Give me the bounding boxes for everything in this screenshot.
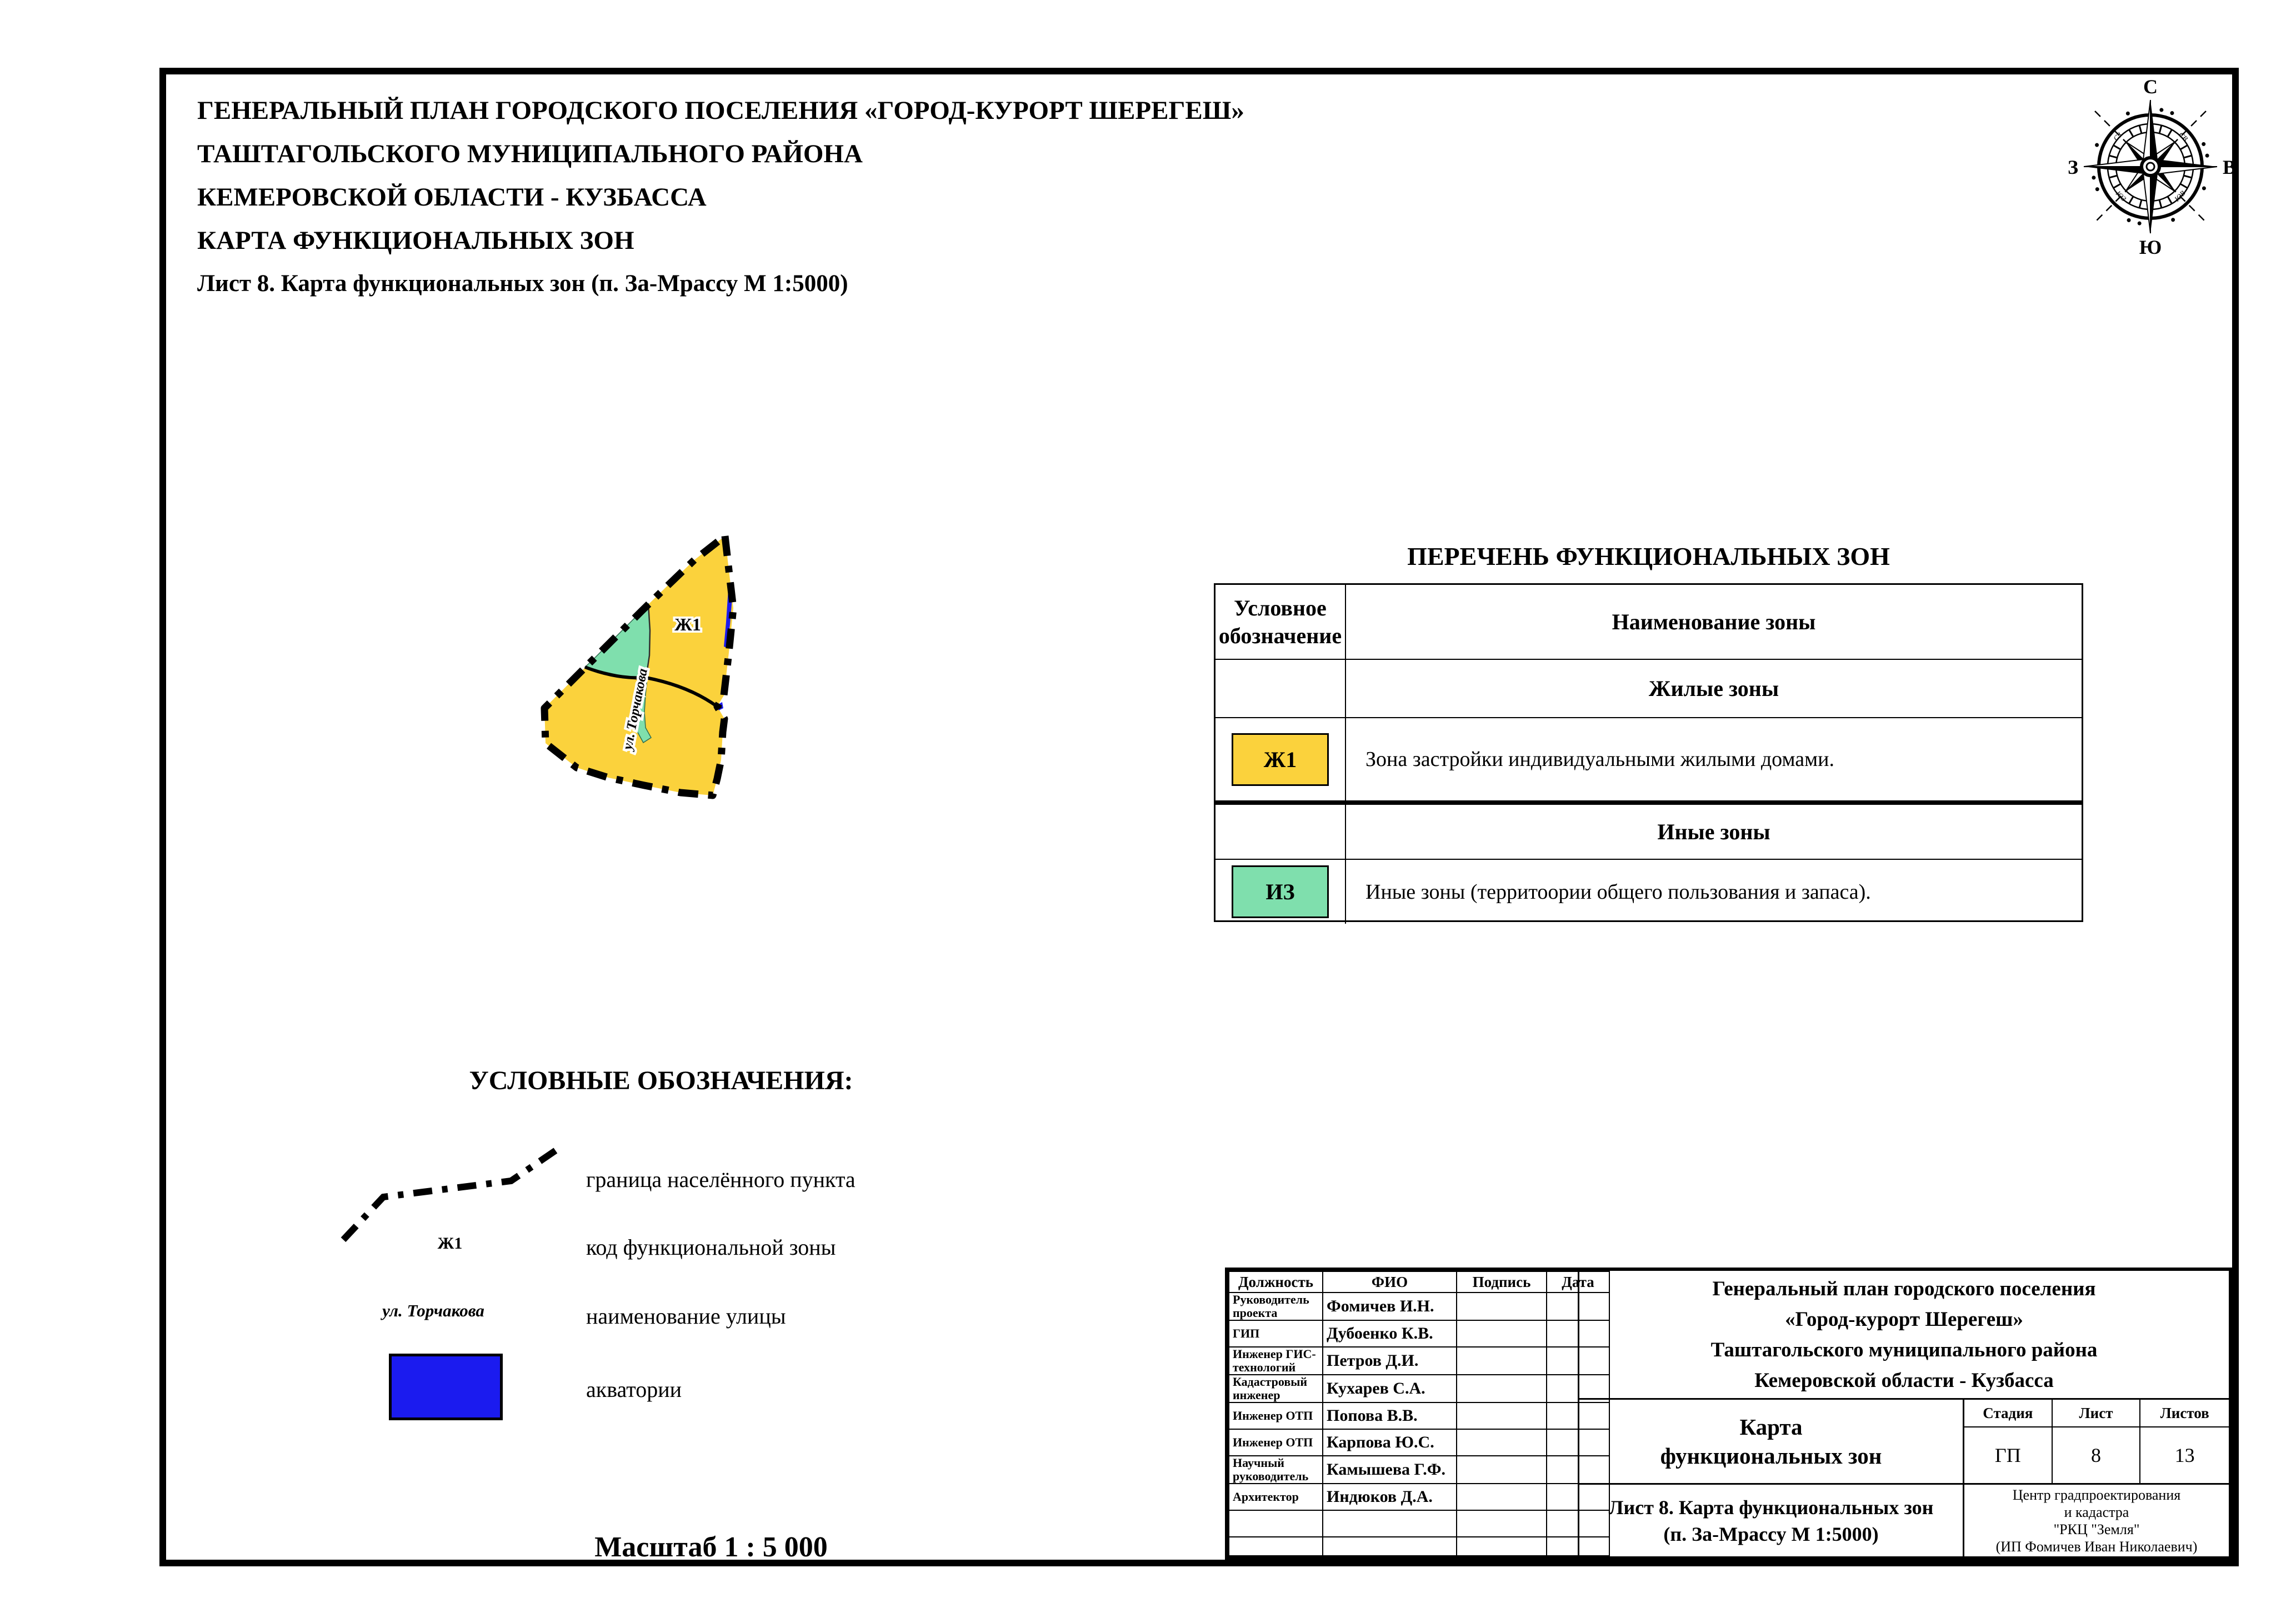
document-title: ГЕНЕРАЛЬНЫЙ ПЛАН ГОРОДСКОГО ПОСЕЛЕНИЯ «Г… [197, 89, 1530, 305]
staff-row: Инженер ОТППопова В.В. [1229, 1402, 1609, 1429]
zones-empty-cell [1215, 660, 1346, 718]
zones-table: Условное обозначение Наименование зоны Ж… [1214, 583, 2083, 922]
org-line: "РКЦ "Земля" [2054, 1521, 2140, 1538]
staff-signature-cell [1457, 1347, 1547, 1375]
sheet-header: Лист [2053, 1400, 2141, 1427]
project-title-line: Кемеровской области - Кузбасса [1754, 1365, 2054, 1396]
map-canvas: Ж1 ул. Торчакова [511, 511, 800, 844]
title-line-5: Лист 8. Карта функциональных зон (п. За-… [197, 262, 1530, 305]
title-line-2: ТАШТАГОЛЬСКОГО МУНИЦИПАЛЬНОГО РАЙОНА [197, 132, 1530, 176]
stage-value: ГП [1964, 1427, 2053, 1483]
zones-empty-cell-2 [1215, 802, 1346, 860]
legend-zone-code-label: код функциональной зоны [586, 1234, 836, 1260]
legend-water-swatch [389, 1354, 503, 1420]
sheet-caption-line: (п. За-Мрассу М 1:5000) [1663, 1521, 1878, 1547]
zone-row-zh1-swatch-cell: Ж1 [1215, 718, 1346, 802]
staff-name: Камышева Г.Ф. [1323, 1456, 1457, 1484]
title-line-3: КЕМЕРОВСКОЙ ОБЛАСТИ - КУЗБАССА [197, 176, 1530, 219]
staff-role [1229, 1537, 1323, 1556]
organization-info: Центр градпроектирования и кадастра "РКЦ… [1964, 1485, 2229, 1556]
boundary-line-symbol [333, 1144, 572, 1247]
legend-title: УСЛОВНЫЕ ОБОЗНАЧЕНИЯ: [356, 1065, 967, 1096]
scale-note: Масштаб 1 : 5 000 [500, 1531, 922, 1564]
compass-north-label: С [2143, 76, 2158, 98]
map-zone-code-label: Ж1 [674, 614, 701, 634]
staff-role: Научный руководитель [1229, 1456, 1323, 1484]
staff-signature-cell [1457, 1456, 1547, 1484]
zone-row-zh1-description: Зона застройки индивидуальными жилыми до… [1346, 718, 2082, 802]
zh1-color-swatch: Ж1 [1232, 733, 1329, 786]
staff-row [1229, 1510, 1609, 1537]
staff-name: Дубоенко К.В. [1323, 1320, 1457, 1347]
legend-street-symbol: ул. Торчакова [356, 1301, 511, 1321]
staff-role: Кадастровый инженер [1229, 1375, 1323, 1402]
staff-signature-cell [1457, 1375, 1547, 1402]
legend-boundary-label: граница населённого пункта [586, 1166, 856, 1193]
zones-col2-header: Наименование зоны [1346, 585, 2082, 660]
stamp-bottom-band: Лист 8. Карта функциональных зон (п. За-… [1579, 1483, 2229, 1556]
staff-name: Карпова Ю.С. [1323, 1429, 1457, 1456]
staff-row: Руководитель проектаФомичев И.Н. [1229, 1293, 1609, 1320]
staff-row: АрхитекторИндюков Д.А. [1229, 1484, 1609, 1510]
staff-role: Инженер ГИС-технологий [1229, 1347, 1323, 1375]
iz-color-swatch: ИЗ [1232, 865, 1329, 918]
zone-row-iz-swatch-cell: ИЗ [1215, 860, 1346, 924]
zones-col1-header: Условное обозначение [1215, 585, 1346, 660]
sheet-value: 8 [2053, 1427, 2141, 1483]
doc-title-line: функциональных зон [1660, 1441, 1882, 1470]
project-title-line: Таштагольского муниципального района [1711, 1335, 2098, 1365]
stage-header: Стадия [1964, 1400, 2053, 1427]
staff-row: Кадастровый инженерКухарев С.А. [1229, 1375, 1609, 1402]
staff-name [1323, 1537, 1457, 1556]
staff-signature-cell [1457, 1293, 1547, 1320]
stamp-project-title: Генеральный план городского поселения «Г… [1579, 1271, 2229, 1400]
zones-group-residential: Жилые зоны [1346, 660, 2082, 718]
compass-south-label: Ю [2139, 236, 2162, 258]
title-line-4: КАРТА ФУНКЦИОНАЛЬНЫХ ЗОН [197, 219, 1530, 262]
legend-water-label: акватории [586, 1376, 682, 1402]
stage-sheet-grid: Стадия Лист Листов ГП 8 13 [1964, 1400, 2229, 1483]
staff-role: Руководитель проекта [1229, 1293, 1323, 1320]
zones-group-other: Иные зоны [1346, 802, 2082, 860]
project-title-line: Генеральный план городского поселения [1713, 1274, 2096, 1304]
staff-role [1229, 1510, 1323, 1537]
staff-role: Инженер ОТП [1229, 1429, 1323, 1456]
compass-rose-icon: С Ю В З СЗ СВ ЮЗ ЮВ [2064, 72, 2237, 261]
staff-signature-cell [1457, 1320, 1547, 1347]
title-block: Должность ФИО Подпись Дата Руководитель … [1225, 1268, 2232, 1560]
staff-role: Инженер ОТП [1229, 1402, 1323, 1429]
staff-row: Инженер ОТПКарпова Ю.С. [1229, 1429, 1609, 1456]
doc-title-line: Карта [1739, 1412, 1802, 1441]
staff-name: Фомичев И.Н. [1323, 1293, 1457, 1320]
sheets-value: 13 [2140, 1427, 2229, 1483]
staff-name: Кухарев С.А. [1323, 1375, 1457, 1402]
sheets-header: Листов [2140, 1400, 2229, 1427]
stamp-doc-title: Карта функциональных зон [1579, 1400, 1964, 1483]
staff-role: ГИП [1229, 1320, 1323, 1347]
staff-table: Должность ФИО Подпись Дата Руководитель … [1228, 1271, 1610, 1556]
stamp-middle-band: Карта функциональных зон Стадия Лист Лис… [1579, 1400, 2229, 1483]
stamp-right-section: Генеральный план городского поселения «Г… [1578, 1271, 2229, 1556]
staff-name: Попова В.В. [1323, 1402, 1457, 1429]
sheet-caption: Лист 8. Карта функциональных зон (п. За-… [1579, 1485, 1964, 1556]
staff-row: Инженер ГИС-технологийПетров Д.И. [1229, 1347, 1609, 1375]
staff-role: Архитектор [1229, 1484, 1323, 1510]
org-line: и кадастра [2064, 1504, 2129, 1521]
sheet-caption-line: Лист 8. Карта функциональных зон [1609, 1494, 1934, 1521]
staff-signature-cell [1457, 1537, 1547, 1556]
staff-name: Петров Д.И. [1323, 1347, 1457, 1375]
zone-row-iz-description: Иные зоны (территоории общего пользовани… [1346, 860, 2082, 924]
staff-row [1229, 1537, 1609, 1556]
compass-east-label: В [2223, 156, 2236, 178]
staff-header-name: ФИО [1323, 1271, 1457, 1293]
staff-signature-cell [1457, 1484, 1547, 1510]
zones-table-title: ПЕРЕЧЕНЬ ФУНКЦИОНАЛЬНЫХ ЗОН [1214, 542, 2083, 571]
staff-header-signature: Подпись [1457, 1271, 1547, 1293]
project-title-line: «Город-курорт Шерегеш» [1785, 1304, 2023, 1335]
staff-header-role: Должность [1229, 1271, 1323, 1293]
legend-street-label: наименование улицы [586, 1303, 786, 1329]
staff-name: Индюков Д.А. [1323, 1484, 1457, 1510]
staff-signature-cell [1457, 1402, 1547, 1429]
legend-zone-code-symbol: Ж1 [406, 1234, 494, 1253]
title-line-1: ГЕНЕРАЛЬНЫЙ ПЛАН ГОРОДСКОГО ПОСЕЛЕНИЯ «Г… [197, 89, 1530, 132]
staff-signature-cell [1457, 1429, 1547, 1456]
staff-name [1323, 1510, 1457, 1537]
org-line: Центр градпроектирования [2013, 1486, 2180, 1504]
staff-row: ГИПДубоенко К.В. [1229, 1320, 1609, 1347]
compass-west-label: З [2068, 156, 2078, 178]
staff-signature-cell [1457, 1510, 1547, 1537]
staff-row: Научный руководительКамышева Г.Ф. [1229, 1456, 1609, 1484]
org-line: (ИП Фомичев Иван Николаевич) [1996, 1538, 2198, 1555]
